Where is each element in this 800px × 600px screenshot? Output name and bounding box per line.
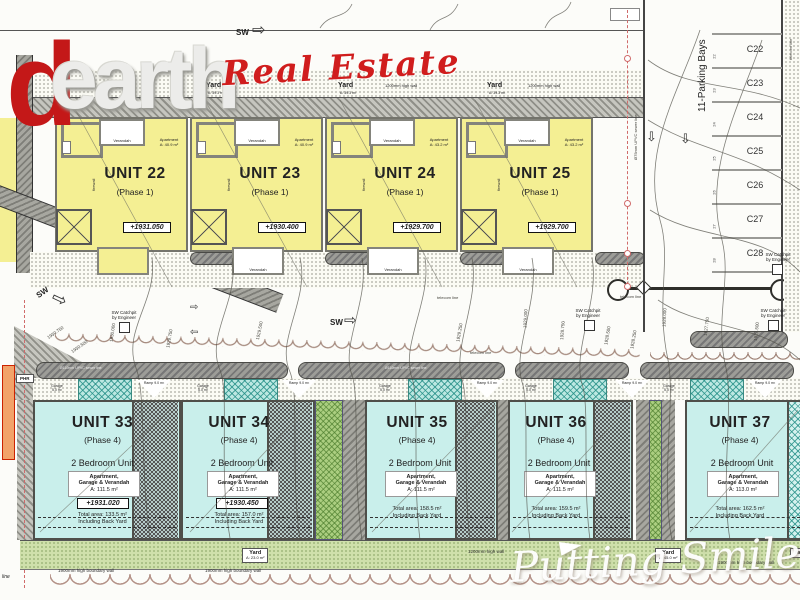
component-line1: Apartment, xyxy=(527,474,593,481)
component-line2: Garage & Verandah xyxy=(71,480,137,487)
service-node xyxy=(624,283,631,290)
unit-name: UNIT 36 xyxy=(510,414,602,432)
unit-36-block: UNIT 36 (Phase 4) 2 Bedroom Unit Apartme… xyxy=(508,400,633,540)
garage-note: Garage5.0 m² xyxy=(656,384,682,392)
apartment-area: A: 43.2 m² xyxy=(556,142,592,147)
contour-label: 1929.000 xyxy=(522,309,528,328)
component-line2: Garage & Verandah xyxy=(710,480,776,487)
wall-pillow xyxy=(36,362,288,379)
telecom-line-label: telecom line xyxy=(788,39,793,60)
stair-box xyxy=(191,209,227,245)
small-arrow-icon: ⇦ xyxy=(190,328,198,338)
unit-35-block: UNIT 35 (Phase 4) 2 Bedroom Unit Apartme… xyxy=(365,400,498,540)
backyard-dashed-line xyxy=(38,517,176,518)
ramp-label: Ramp xyxy=(477,381,486,385)
component-line2: Garage & Verandah xyxy=(527,480,593,487)
sewer-note: Ø110mm UPVC sewer line xyxy=(385,366,427,370)
parking-bay-label: C22 xyxy=(733,44,777,54)
small-arrow-icon: ⇨ xyxy=(190,303,198,313)
contour-label: 1929.500 xyxy=(255,321,264,340)
unit-type: 2 Bedroom Unit xyxy=(367,458,473,468)
apartment-note: Apartment A: 43.2 m² xyxy=(556,137,592,147)
floor-level: +1931.050 xyxy=(123,222,171,233)
parking-bays-title: 11-Parking Bays xyxy=(697,39,708,112)
garage-court xyxy=(224,379,278,401)
rear-verandah: Verandah xyxy=(232,247,284,275)
firewall-label: firewall xyxy=(361,179,366,191)
apartment-area: A: 113.0 m² xyxy=(710,487,776,494)
sw-flow-arrow-icon: ⇨ xyxy=(49,288,70,311)
rear-verandah: Verandah xyxy=(502,247,554,275)
apartment-area: A: 40.9 m² xyxy=(151,142,187,147)
parking-stall-line xyxy=(712,67,782,69)
parking-stall-line xyxy=(712,135,782,137)
firewall-label: firewall xyxy=(496,179,501,191)
door xyxy=(332,141,341,154)
unit-type: 2 Bedroom Unit xyxy=(510,458,608,468)
unit-phase: (Phase 4) xyxy=(510,435,602,445)
apartment-note: Apartment A: 40.9 m² xyxy=(286,137,322,147)
parking-stall-line xyxy=(712,33,782,35)
unit-type: 2 Bedroom Unit xyxy=(35,458,170,468)
sw-flow-arrow-icon: ⇨ xyxy=(252,23,265,39)
ramp-area: 9.0 m² xyxy=(487,381,497,385)
stair-box xyxy=(326,209,362,245)
illegible-note-box xyxy=(610,8,640,21)
door xyxy=(467,141,476,154)
garage-note: Garage5.0 m² xyxy=(44,384,70,392)
sewer-note: Ø110mm UPVC sewer line xyxy=(60,366,102,370)
catchpit-line2: by Engineer xyxy=(104,315,144,320)
contour-label: 1928.500 xyxy=(603,326,611,345)
yard-label: Yard xyxy=(487,82,502,90)
stall-number: 26 xyxy=(712,190,717,194)
parking-bay-label: C28 xyxy=(733,248,777,258)
boundary-wall-note: 1900mm high boundary wall xyxy=(205,568,261,573)
verandah-label: Verandah xyxy=(384,267,401,272)
logo-word-earth: earth xyxy=(50,36,235,122)
sw-flow-arrow-icon: ⇨ xyxy=(344,313,357,328)
service-line xyxy=(627,10,628,290)
store-room xyxy=(196,122,238,158)
unit-24-block: Verandah Apartment A: 43.2 m² UNIT 24 (P… xyxy=(325,117,458,252)
garage-note: Garage5.0 m² xyxy=(372,384,398,392)
boundary-wall-note: 1900mm high boundary wall xyxy=(58,568,114,573)
unit-name: UNIT 24 xyxy=(353,165,457,183)
garage-note: Garage5.0 m² xyxy=(518,384,544,392)
telecom-line-label: telecom line xyxy=(620,294,641,299)
unit-name: UNIT 22 xyxy=(83,165,187,183)
site-plan-drawing: Yard A: 39.3 m² Yard A: 39.3 m² Yard A: … xyxy=(0,0,800,600)
total-area: Total area: 133.5 m² Including Back Yard xyxy=(45,512,160,526)
stall-number: 27 xyxy=(712,224,717,228)
garage-area: 5.0 m² xyxy=(190,388,216,392)
ramp-area: 9.0 m² xyxy=(765,381,775,385)
total-note: Including Back Yard xyxy=(183,519,295,526)
verandah-label: Verandah xyxy=(519,267,536,272)
catchpit-icon xyxy=(772,264,783,275)
green-buffer-band xyxy=(315,400,343,540)
verandah-label: Verandah xyxy=(383,138,400,143)
wall-pillow xyxy=(298,362,505,379)
ramp-label: Ramp xyxy=(622,381,631,385)
unit-name: UNIT 25 xyxy=(488,165,592,183)
yard-area: A: 23.0 m² xyxy=(246,556,264,561)
sw-flow-label: SW xyxy=(330,318,343,327)
unit-name: UNIT 23 xyxy=(218,165,322,183)
total-line: Total area: 159.5 m² xyxy=(510,506,602,513)
cloud-line xyxy=(55,333,640,358)
phr-box: PHR xyxy=(16,374,34,383)
unit-phase: (Phase 4) xyxy=(183,435,295,445)
apartment-area: A: 43.2 m² xyxy=(421,142,457,147)
stall-number: 25 xyxy=(712,156,717,160)
unit-25-block: Verandah Apartment A: 43.2 m² UNIT 25 (P… xyxy=(460,117,593,252)
yard-area-label: A: 39.3 m² xyxy=(340,91,356,95)
total-line: Total area: 162.5 m² xyxy=(689,506,791,513)
components-box: Apartment, Garage & Verandah A: 113.0 m² xyxy=(707,471,779,497)
backyard-dashed-line xyxy=(38,527,176,528)
parking-bay-label: C24 xyxy=(733,112,777,122)
catchpit-note: SW Catchpit by Engineer xyxy=(753,308,793,319)
unit-type: 2 Bedroom Unit xyxy=(687,458,797,468)
unit-33-block: UNIT 33 (Phase 4) 2 Bedroom Unit Apartme… xyxy=(33,400,181,540)
unit-name: UNIT 35 xyxy=(367,414,467,432)
sw-flow-label: SW xyxy=(236,28,249,37)
down-arrow-icon: ⇩ xyxy=(646,130,657,143)
total-line: Total area: 158.5 m² xyxy=(367,506,467,513)
stair-box xyxy=(461,209,497,245)
unit-37-block: UNIT 37 (Phase 4) 2 Bedroom Unit Apartme… xyxy=(685,400,800,540)
total-area: Total area: 157.0 m² Including Back Yard xyxy=(183,512,295,526)
ramp-label: Ramp xyxy=(289,381,298,385)
unit-23-block: Verandah Apartment A: 40.9 m² UNIT 23 (P… xyxy=(190,117,323,252)
apartment-area: A: 40.9 m² xyxy=(286,142,322,147)
telecom-line-label: telecom line xyxy=(437,295,458,300)
catchpit-icon xyxy=(119,322,130,333)
stall-number: 24 xyxy=(712,122,717,126)
service-node xyxy=(624,55,631,62)
total-area: Total area: 162.5 m² Including Back Yard xyxy=(689,506,791,520)
down-arrow-icon: ⇩ xyxy=(680,132,691,145)
unit-phase: (Phase 4) xyxy=(40,435,165,445)
ramp-area: 9.0 m² xyxy=(632,381,642,385)
backyard-dashed-line xyxy=(186,517,310,518)
ramp-area: 9.0 m² xyxy=(299,381,309,385)
backyard-dashed-line xyxy=(370,527,493,528)
component-line1: Apartment, xyxy=(71,474,137,481)
component-line2: Garage & Verandah xyxy=(210,480,276,487)
wall-height-note: 1200mm high wall xyxy=(468,549,504,554)
garage-court xyxy=(553,379,607,401)
road-edge-line xyxy=(643,0,645,332)
verandah-label: Verandah xyxy=(248,138,265,143)
garage-area: 5.0 m² xyxy=(518,388,544,392)
green-buffer-band xyxy=(649,400,662,540)
catchpit-icon xyxy=(584,320,595,331)
verandah-label: Verandah xyxy=(249,267,266,272)
ramp-label: Ramp xyxy=(755,381,764,385)
total-area: Total area: 159.5 m² Including Back Yard xyxy=(510,506,602,520)
catchpit-line2: by Engineer xyxy=(758,257,798,262)
unit-phase: (Phase 1) xyxy=(488,187,592,197)
wall-pillow xyxy=(640,362,794,379)
ramp-area: 9.0 m² xyxy=(154,381,164,385)
floor-level: +1929.700 xyxy=(393,222,441,233)
store-room xyxy=(331,122,373,158)
unit-phase: (Phase 4) xyxy=(687,435,793,445)
service-node xyxy=(624,200,631,207)
wall-band xyxy=(662,400,675,540)
apartment-note: Apartment A: 40.9 m² xyxy=(151,137,187,147)
floor-level: +1931.020 xyxy=(77,498,129,509)
component-line1: Apartment, xyxy=(710,474,776,481)
stall-number: 23 xyxy=(712,88,717,92)
unit-phase: (Phase 4) xyxy=(367,435,467,445)
garage-area: 5.0 m² xyxy=(372,388,398,392)
apartment-area: A: 111.5 m² xyxy=(527,487,593,494)
components-box: Apartment, Garage & Verandah A: 111.5 m² xyxy=(207,471,279,497)
orange-strip xyxy=(2,365,15,460)
service-node xyxy=(624,250,631,257)
catchpit-icon xyxy=(768,320,779,331)
catchpit-line2: by Engineer xyxy=(753,313,793,318)
unit-34-block: UNIT 34 (Phase 4) 2 Bedroom Unit Apartme… xyxy=(181,400,315,540)
unit-phase: (Phase 1) xyxy=(353,187,457,197)
stall-number: 22 xyxy=(712,54,717,58)
apartment-note: Apartment A: 43.2 m² xyxy=(421,137,457,147)
unit-type: 2 Bedroom Unit xyxy=(183,458,301,468)
total-line: Total area: 133.5 m² xyxy=(45,512,160,519)
contour-label: 1928.000 xyxy=(661,308,667,327)
unit-phase: (Phase 1) xyxy=(218,187,322,197)
left-wall-band xyxy=(17,400,33,540)
ramp-label: Ramp xyxy=(144,381,153,385)
garage-court xyxy=(690,379,744,401)
unit-name: UNIT 33 xyxy=(40,414,165,432)
parking-stall-line xyxy=(712,101,782,103)
store-room xyxy=(466,122,508,158)
backyard-dashed-line xyxy=(513,517,628,518)
wall-pillow xyxy=(515,362,629,379)
parking-bay-label: C23 xyxy=(733,78,777,88)
verandah-room: Verandah xyxy=(234,119,280,146)
components-box: Apartment, Garage & Verandah A: 111.5 m² xyxy=(524,471,596,497)
telecom-line-label: telecom line xyxy=(470,350,491,355)
door xyxy=(197,141,206,154)
rear-verandah xyxy=(97,247,149,275)
yard-box: Yard A: 23.0 m² xyxy=(242,548,268,563)
garage-area: 5.0 m² xyxy=(44,388,70,392)
component-line1: Apartment, xyxy=(388,474,454,481)
floor-level: +1929.700 xyxy=(528,222,576,233)
parking-stall-line xyxy=(712,237,782,239)
apartment-area: A: 111.5 m² xyxy=(210,487,276,494)
apartment-area: A: 111.5 m² xyxy=(71,487,137,494)
unit-name: UNIT 34 xyxy=(183,414,295,432)
garage-note: Garage5.0 m² xyxy=(190,384,216,392)
catchpit-line2: by Engineer xyxy=(568,313,608,318)
unit-phase: (Phase 1) xyxy=(83,187,187,197)
component-line2: Garage & Verandah xyxy=(388,480,454,487)
yard-area-label: A: 39.3 m² xyxy=(489,91,505,95)
sewer-line-label: Ø75mm UPVC sewer line xyxy=(633,114,638,160)
contour-label: 1929.250 xyxy=(455,323,463,342)
unit-name: UNIT 37 xyxy=(687,414,793,432)
backyard-dashed-line xyxy=(186,527,310,528)
verandah-label: Verandah xyxy=(518,138,535,143)
stair-box xyxy=(56,209,92,245)
garage-court xyxy=(408,379,462,401)
components-box: Apartment, Garage & Verandah A: 111.5 m² xyxy=(68,471,140,497)
parking-stall-line xyxy=(712,169,782,171)
wall-band xyxy=(498,400,508,540)
components-box: Apartment, Garage & Verandah A: 111.5 m² xyxy=(385,471,457,497)
rear-wall-bar xyxy=(595,252,645,265)
road-edge-line xyxy=(781,0,783,332)
firewall-label: firewall xyxy=(91,179,96,191)
floor-level: +1930.400 xyxy=(258,222,306,233)
parking-stall-line xyxy=(712,203,782,205)
apartment-area: A: 111.5 m² xyxy=(388,487,454,494)
parking-bay-label: C27 xyxy=(733,214,777,224)
wall-band xyxy=(636,400,649,540)
verandah-label: Verandah xyxy=(113,138,130,143)
garage-court xyxy=(78,379,132,401)
contour-label: 1928.250 xyxy=(629,330,637,349)
total-note: Including Back Yard xyxy=(45,519,160,526)
cloud-line xyxy=(650,352,800,361)
garage-area: 5.0 m² xyxy=(656,388,682,392)
catchpit-note: SW Catchpit by Engineer xyxy=(104,310,144,321)
wall-height-note: 1200mm high wall xyxy=(528,84,560,89)
backyard-dashed-line xyxy=(513,527,628,528)
parking-bay-label: C26 xyxy=(733,180,777,190)
total-area: Total area: 158.5 m² Including Back Yard xyxy=(367,506,467,520)
verandah-room: Verandah xyxy=(504,119,550,146)
rear-verandah: Verandah xyxy=(367,247,419,275)
cut-line-label: line xyxy=(2,574,10,580)
backyard-dashed-line xyxy=(370,517,493,518)
contour-label: 1928.750 xyxy=(559,321,566,340)
wall-band xyxy=(343,400,365,540)
verandah-room: Verandah xyxy=(369,119,415,146)
catchpit-note: SW Catchpit by Engineer xyxy=(568,308,608,319)
stall-number: 28 xyxy=(712,258,717,262)
parking-bay-label: C25 xyxy=(733,146,777,156)
firewall-label: firewall xyxy=(226,179,231,191)
backyard-dashed-line xyxy=(690,517,800,518)
total-line: Total area: 157.0 m² xyxy=(183,512,295,519)
floor-level: +1930.450 xyxy=(216,498,268,509)
component-line1: Apartment, xyxy=(210,474,276,481)
unit-22-block: Verandah Apartment A: 40.9 m² UNIT 22 (P… xyxy=(55,117,188,252)
